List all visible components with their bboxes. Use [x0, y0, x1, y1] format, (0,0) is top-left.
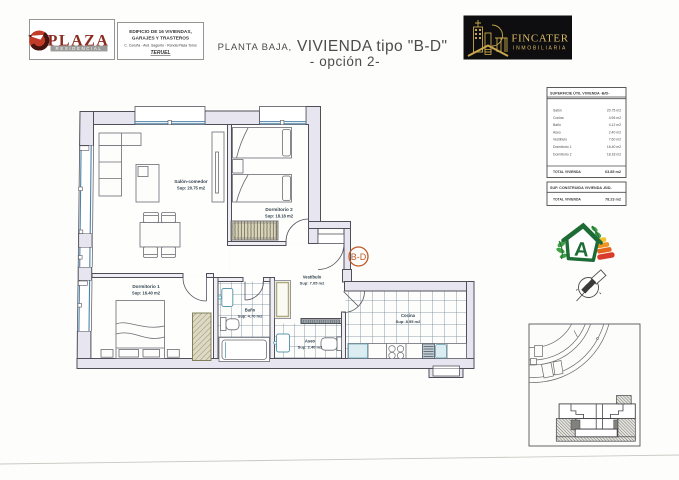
svg-text:SUP. CONSTRUIDA VIVIENDA -B/D-: SUP. CONSTRUIDA VIVIENDA -B/D- [550, 186, 613, 190]
svg-text:4.12 m2: 4.12 m2 [609, 123, 621, 127]
svg-text:Sup: 7.05 m2: Sup: 7.05 m2 [300, 281, 325, 286]
svg-text:Cocina: Cocina [401, 313, 416, 318]
svg-text:18.18 m2: 18.18 m2 [607, 152, 621, 156]
svg-text:INMOBILIARIA: INMOBILIARIA [513, 46, 567, 52]
svg-text:FINCATER: FINCATER [511, 33, 568, 45]
svg-text:63.85 m2: 63.85 m2 [605, 170, 621, 174]
svg-text:Sup: 20.75 m2: Sup: 20.75 m2 [177, 186, 206, 191]
svg-text:Aseo: Aseo [305, 339, 316, 344]
svg-text:VIVIENDA tipo "B-D": VIVIENDA tipo "B-D" [297, 38, 447, 55]
svg-text:Dormitorio 2: Dormitorio 2 [265, 207, 293, 212]
svg-text:Sup: 18.18 m2: Sup: 18.18 m2 [265, 214, 294, 219]
svg-text:Aseo: Aseo [553, 130, 561, 134]
svg-text:Baño: Baño [245, 308, 256, 313]
svg-text:RESIDENCIAL: RESIDENCIAL [56, 46, 103, 51]
svg-text:Dormitorio 2: Dormitorio 2 [553, 152, 572, 156]
svg-text:Sup: 4.70 m2: Sup: 4.70 m2 [238, 314, 263, 319]
svg-text:7.60 m2: 7.60 m2 [609, 138, 621, 142]
svg-text:Vestíbulo: Vestíbulo [303, 275, 322, 280]
svg-text:Vestíbulo: Vestíbulo [553, 138, 567, 142]
svg-text:Dormitorio 1: Dormitorio 1 [132, 284, 160, 289]
svg-text:78.23 m2: 78.23 m2 [605, 198, 621, 202]
svg-text:SUPERFICIE ÚTIL VIVIENDA -B/D-: SUPERFICIE ÚTIL VIVIENDA -B/D- [550, 91, 610, 96]
svg-text:B-D: B-D [351, 252, 367, 262]
svg-text:Dormitorio 1: Dormitorio 1 [553, 145, 572, 149]
svg-text:Salón: Salón [553, 109, 562, 113]
svg-text:Salón-comedor: Salón-comedor [174, 179, 208, 184]
svg-text:16.40 m2: 16.40 m2 [607, 145, 621, 149]
svg-text:EDIFICIO DE 16 VIVIENDAS,: EDIFICIO DE 16 VIVIENDAS, [129, 29, 192, 34]
svg-text:20.75 m2: 20.75 m2 [607, 109, 621, 113]
svg-text:4.96 m2: 4.96 m2 [609, 116, 621, 120]
svg-text:Baño: Baño [553, 123, 561, 127]
svg-text:A: A [574, 239, 590, 262]
svg-text:C. Coruña - Avd. Sagunto - Ron: C. Coruña - Avd. Sagunto - Ronda Plaza T… [124, 44, 197, 48]
svg-text:Sup: 2.40 m2: Sup: 2.40 m2 [298, 345, 323, 350]
svg-text:TOTAL VIVIENDA: TOTAL VIVIENDA [553, 198, 581, 202]
svg-text:GARAJES Y TRASTEROS: GARAJES Y TRASTEROS [132, 36, 189, 41]
svg-text:TERUEL: TERUEL [151, 50, 171, 56]
svg-text:2.40 m2: 2.40 m2 [609, 130, 621, 134]
svg-text:Cocina: Cocina [553, 116, 564, 120]
svg-text:PLANTA BAJA,: PLANTA BAJA, [218, 42, 292, 53]
svg-text:Sup: 8.55 m2: Sup: 8.55 m2 [396, 319, 421, 324]
svg-text:TOTAL VIVIENDA: TOTAL VIVIENDA [553, 170, 581, 174]
svg-text:- opción 2-: - opción 2- [310, 54, 380, 69]
svg-text:Sup: 16.40 m2: Sup: 16.40 m2 [132, 291, 161, 296]
